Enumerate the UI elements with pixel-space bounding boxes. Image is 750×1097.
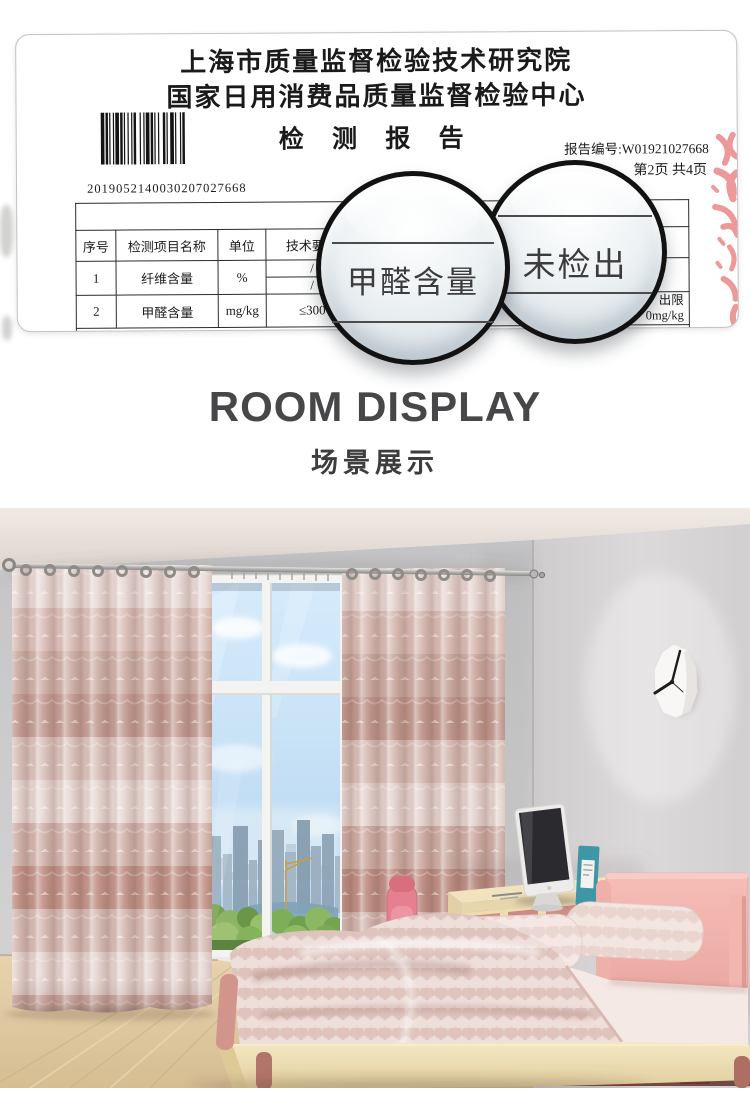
barcode-number: 2019052140030207027668 (87, 181, 247, 197)
magnified-item-text: 甲醛含量 (347, 257, 479, 302)
section-title-cn: 场景展示 (0, 441, 750, 480)
institute-name: 上海市质量监督检验技术研究院 (16, 42, 736, 81)
inspection-center-name: 国家日用消费品质量监督检验中心 (16, 77, 736, 116)
left-curtain (12, 565, 212, 1015)
red-stamp (689, 131, 739, 332)
bed-leg (734, 1056, 750, 1088)
test-report-section: 上海市质量监督检验技术研究院 国家日用消费品质量监督检验中心 检 测 报 告 2… (0, 0, 750, 380)
paper-smudge (0, 205, 13, 257)
report-number: 报告编号:W01921027668 (564, 137, 709, 158)
section-title-en: ROOM DISPLAY (0, 383, 750, 431)
barcode (101, 112, 207, 165)
room-photo (0, 508, 750, 1088)
window (194, 575, 352, 970)
paper-smudge (2, 316, 12, 340)
section-heading: ROOM DISPLAY 场景展示 (0, 383, 750, 480)
magnifier-formaldehyde: 甲醛含量 (316, 171, 510, 365)
pillow-back (564, 901, 705, 962)
magnifier-result: 未检出 (483, 160, 667, 344)
col-item: 检测项目名称 (116, 229, 218, 261)
curtain-floor-shadow (5, 1007, 215, 1021)
magnified-result-text: 未检出 (523, 238, 628, 286)
window-transom (206, 681, 340, 695)
rod-finial-right (530, 570, 538, 578)
col-no: 序号 (76, 230, 116, 261)
col-unit: 单位 (218, 229, 266, 260)
